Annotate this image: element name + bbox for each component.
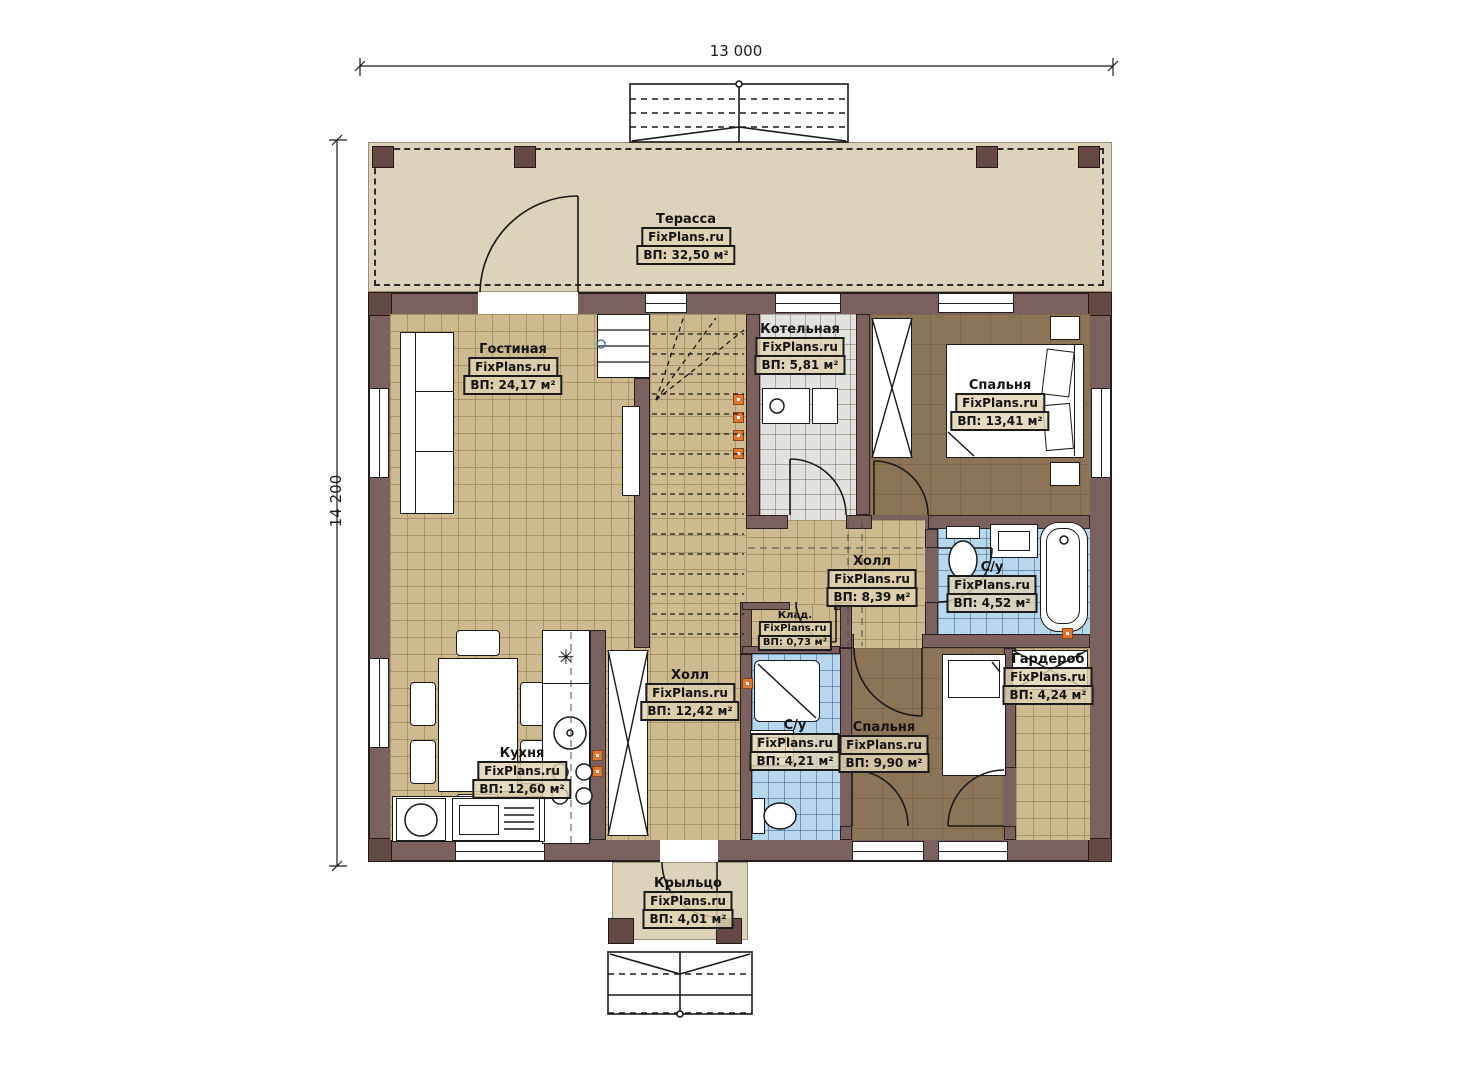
dimension-height-label: 14 200 <box>327 451 345 551</box>
heat-marker <box>733 430 744 441</box>
heat-marker <box>1062 628 1073 639</box>
chair <box>456 630 500 656</box>
terrace-post <box>976 146 998 168</box>
watermark: FixPlans.ru <box>955 393 1045 413</box>
wall-segment <box>856 314 870 515</box>
terrace-post <box>1078 146 1100 168</box>
window <box>938 841 1008 861</box>
porch-steps <box>608 952 752 1017</box>
toilet-tank <box>946 526 980 539</box>
terrace-post <box>514 146 536 168</box>
watermark: FixPlans.ru <box>947 575 1037 595</box>
heat-marker <box>733 448 744 459</box>
room-label-hall1: Холл FixPlans.ru ВП: 8,39 м² <box>826 554 917 607</box>
closet <box>872 318 912 458</box>
room-label-terrace: Терасса FixPlans.ru ВП: 32,50 м² <box>636 212 735 265</box>
wall-segment <box>925 529 938 548</box>
watermark: FixPlans.ru <box>1003 667 1093 687</box>
heat-marker <box>592 766 603 777</box>
heat-marker <box>592 750 603 761</box>
wall-corner <box>1088 838 1112 862</box>
entrance-door-opening <box>660 840 718 862</box>
room-label-boiler: Котельная FixPlans.ru ВП: 5,81 м² <box>754 322 845 375</box>
chair <box>410 740 436 784</box>
fridge: ✳ <box>542 630 590 684</box>
window <box>369 658 389 748</box>
wall-corner <box>368 838 392 862</box>
nightstand <box>1050 316 1080 340</box>
watermark: FixPlans.ru <box>827 569 917 589</box>
porch-post <box>608 918 634 944</box>
tv <box>622 406 640 496</box>
heat-marker <box>742 678 753 689</box>
room-label-bedroom2: Спальня FixPlans.ru ВП: 9,90 м² <box>838 720 929 773</box>
room-label-bedroom1: Спальня FixPlans.ru ВП: 13,41 м² <box>950 378 1049 431</box>
watermark: FixPlans.ru <box>468 357 558 377</box>
window <box>1091 388 1111 478</box>
window <box>852 841 924 861</box>
floor-stair-hall <box>650 314 746 840</box>
window <box>369 388 389 478</box>
chair <box>410 682 436 726</box>
floor-plan-canvas: 13 000 14 200 <box>0 0 1473 1080</box>
room-label-bath1: С/у FixPlans.ru ВП: 4,52 м² <box>946 560 1037 613</box>
room-label-storage: Клад. FixPlans.ru ВП: 0,73 м² <box>758 610 832 651</box>
shower <box>754 660 820 722</box>
window <box>938 293 1014 313</box>
wall-segment <box>840 826 852 840</box>
fridge-icon: ✳ <box>558 647 575 667</box>
window <box>645 293 687 313</box>
washing-machine <box>396 798 446 841</box>
boiler-cabinet <box>812 388 838 424</box>
watermark: FixPlans.ru <box>645 683 735 703</box>
nightstand <box>1050 462 1080 486</box>
dimension-width-label: 13 000 <box>686 42 786 60</box>
heat-marker <box>733 394 744 405</box>
sofa <box>400 332 454 514</box>
wall-segment <box>590 630 606 840</box>
terrace-dashed-edge <box>374 148 1104 286</box>
room-label-bath2: С/у FixPlans.ru ВП: 4,21 м² <box>749 718 840 771</box>
watermark: FixPlans.ru <box>839 735 929 755</box>
wall-segment <box>846 515 872 529</box>
wall-segment <box>742 602 790 610</box>
wall-corner <box>1088 292 1112 316</box>
window <box>455 841 545 861</box>
stairs-upper-flight <box>597 314 650 378</box>
wall-segment <box>746 515 788 529</box>
wall-segment <box>840 602 852 648</box>
terrace-post <box>372 146 394 168</box>
oven <box>452 798 540 841</box>
bathtub <box>1040 522 1088 632</box>
watermark: FixPlans.ru <box>750 733 840 753</box>
pillow <box>948 660 1000 698</box>
wall-corner <box>368 292 392 316</box>
room-label-kitchen: Кухня FixPlans.ru ВП: 12,60 м² <box>472 746 571 799</box>
terrace-steps <box>630 81 848 142</box>
watermark: FixPlans.ru <box>643 891 733 911</box>
room-label-porch: Крыльцо FixPlans.ru ВП: 4,01 м² <box>642 876 733 929</box>
washbasin <box>990 524 1038 558</box>
heat-marker <box>733 412 744 423</box>
terrace-door-opening <box>478 292 578 314</box>
boiler-unit <box>762 388 810 424</box>
toilet-tank <box>752 798 765 834</box>
watermark: FixPlans.ru <box>641 227 731 247</box>
wall-segment <box>1004 826 1016 840</box>
window <box>775 293 841 313</box>
room-label-hall2: Холл FixPlans.ru ВП: 12,42 м² <box>640 668 739 721</box>
watermark: FixPlans.ru <box>755 337 845 357</box>
room-label-wardrobe: Гардероб FixPlans.ru ВП: 4,24 м² <box>1002 652 1093 705</box>
room-label-living: Гостиная FixPlans.ru ВП: 24,17 м² <box>463 342 562 395</box>
watermark: FixPlans.ru <box>477 761 567 781</box>
